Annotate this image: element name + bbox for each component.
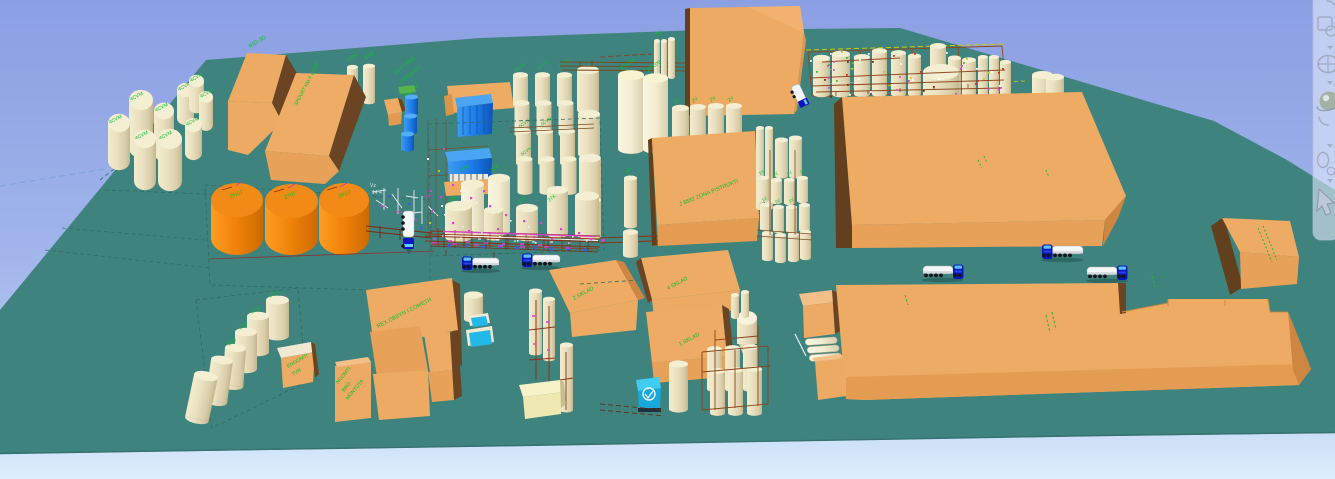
svg-text:14 4: 14 4 bbox=[372, 190, 382, 196]
svg-text:Vz: Vz bbox=[370, 183, 376, 189]
